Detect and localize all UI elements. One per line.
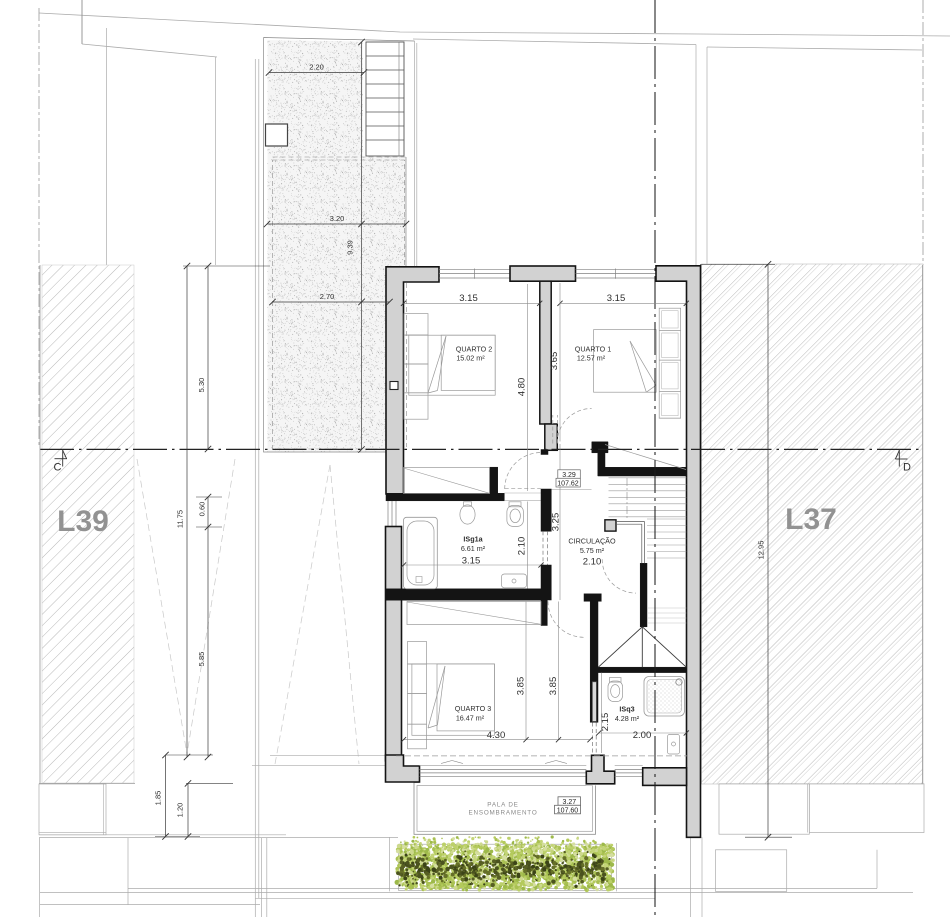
svg-text:0.60: 0.60: [198, 502, 207, 517]
svg-text:3.15: 3.15: [607, 293, 626, 304]
svg-text:9.39: 9.39: [346, 240, 355, 255]
svg-text:4.80: 4.80: [517, 378, 528, 397]
svg-text:4.28 m²: 4.28 m²: [615, 714, 640, 723]
svg-text:16.47 m²: 16.47 m²: [456, 714, 485, 723]
svg-text:4.30: 4.30: [487, 730, 506, 741]
svg-text:3.85: 3.85: [516, 677, 527, 696]
svg-text:5.75 m²: 5.75 m²: [580, 546, 605, 555]
svg-text:3.27: 3.27: [562, 799, 576, 806]
svg-text:QUARTO 1: QUARTO 1: [575, 345, 611, 354]
svg-text:1.85: 1.85: [154, 791, 163, 806]
svg-text:107.60: 107.60: [557, 807, 579, 814]
svg-text:11.75: 11.75: [176, 510, 185, 528]
svg-text:5.85: 5.85: [197, 652, 206, 667]
svg-text:2.20: 2.20: [309, 63, 324, 72]
svg-text:1.20: 1.20: [176, 803, 185, 818]
svg-text:L39: L39: [57, 505, 109, 538]
svg-text:PALA DE: PALA DE: [487, 802, 518, 809]
svg-text:3.85: 3.85: [548, 677, 559, 696]
svg-text:2.10: 2.10: [517, 537, 528, 556]
svg-text:CIRCULAÇÃO: CIRCULAÇÃO: [568, 537, 616, 546]
svg-text:3.15: 3.15: [462, 556, 481, 567]
svg-text:15.02 m²: 15.02 m²: [456, 354, 485, 363]
svg-text:3.65: 3.65: [549, 352, 560, 371]
svg-text:3.15: 3.15: [459, 293, 478, 304]
svg-text:3.25: 3.25: [551, 513, 562, 532]
svg-text:QUARTO 2: QUARTO 2: [456, 345, 492, 354]
svg-text:L37: L37: [785, 503, 837, 536]
svg-text:3.29: 3.29: [562, 472, 576, 479]
svg-text:3.20: 3.20: [330, 214, 345, 223]
svg-text:ISq3: ISq3: [619, 705, 634, 714]
svg-text:2.15: 2.15: [600, 713, 611, 732]
svg-text:2.00: 2.00: [633, 730, 652, 741]
svg-text:12.57 m²: 12.57 m²: [577, 354, 606, 363]
svg-text:C: C: [54, 462, 62, 474]
svg-text:5.30: 5.30: [197, 378, 206, 393]
svg-text:6.61 m²: 6.61 m²: [461, 544, 486, 553]
svg-text:2.70: 2.70: [320, 292, 335, 301]
svg-text:2.10: 2.10: [583, 557, 602, 568]
svg-text:ISg1a: ISg1a: [463, 535, 483, 544]
svg-text:12.95: 12.95: [757, 541, 766, 560]
svg-text:QUARTO 3: QUARTO 3: [455, 704, 491, 713]
svg-text:107.62: 107.62: [557, 481, 579, 488]
svg-text:D: D: [903, 462, 911, 474]
svg-text:ENSOMBRAMENTO: ENSOMBRAMENTO: [468, 810, 537, 817]
